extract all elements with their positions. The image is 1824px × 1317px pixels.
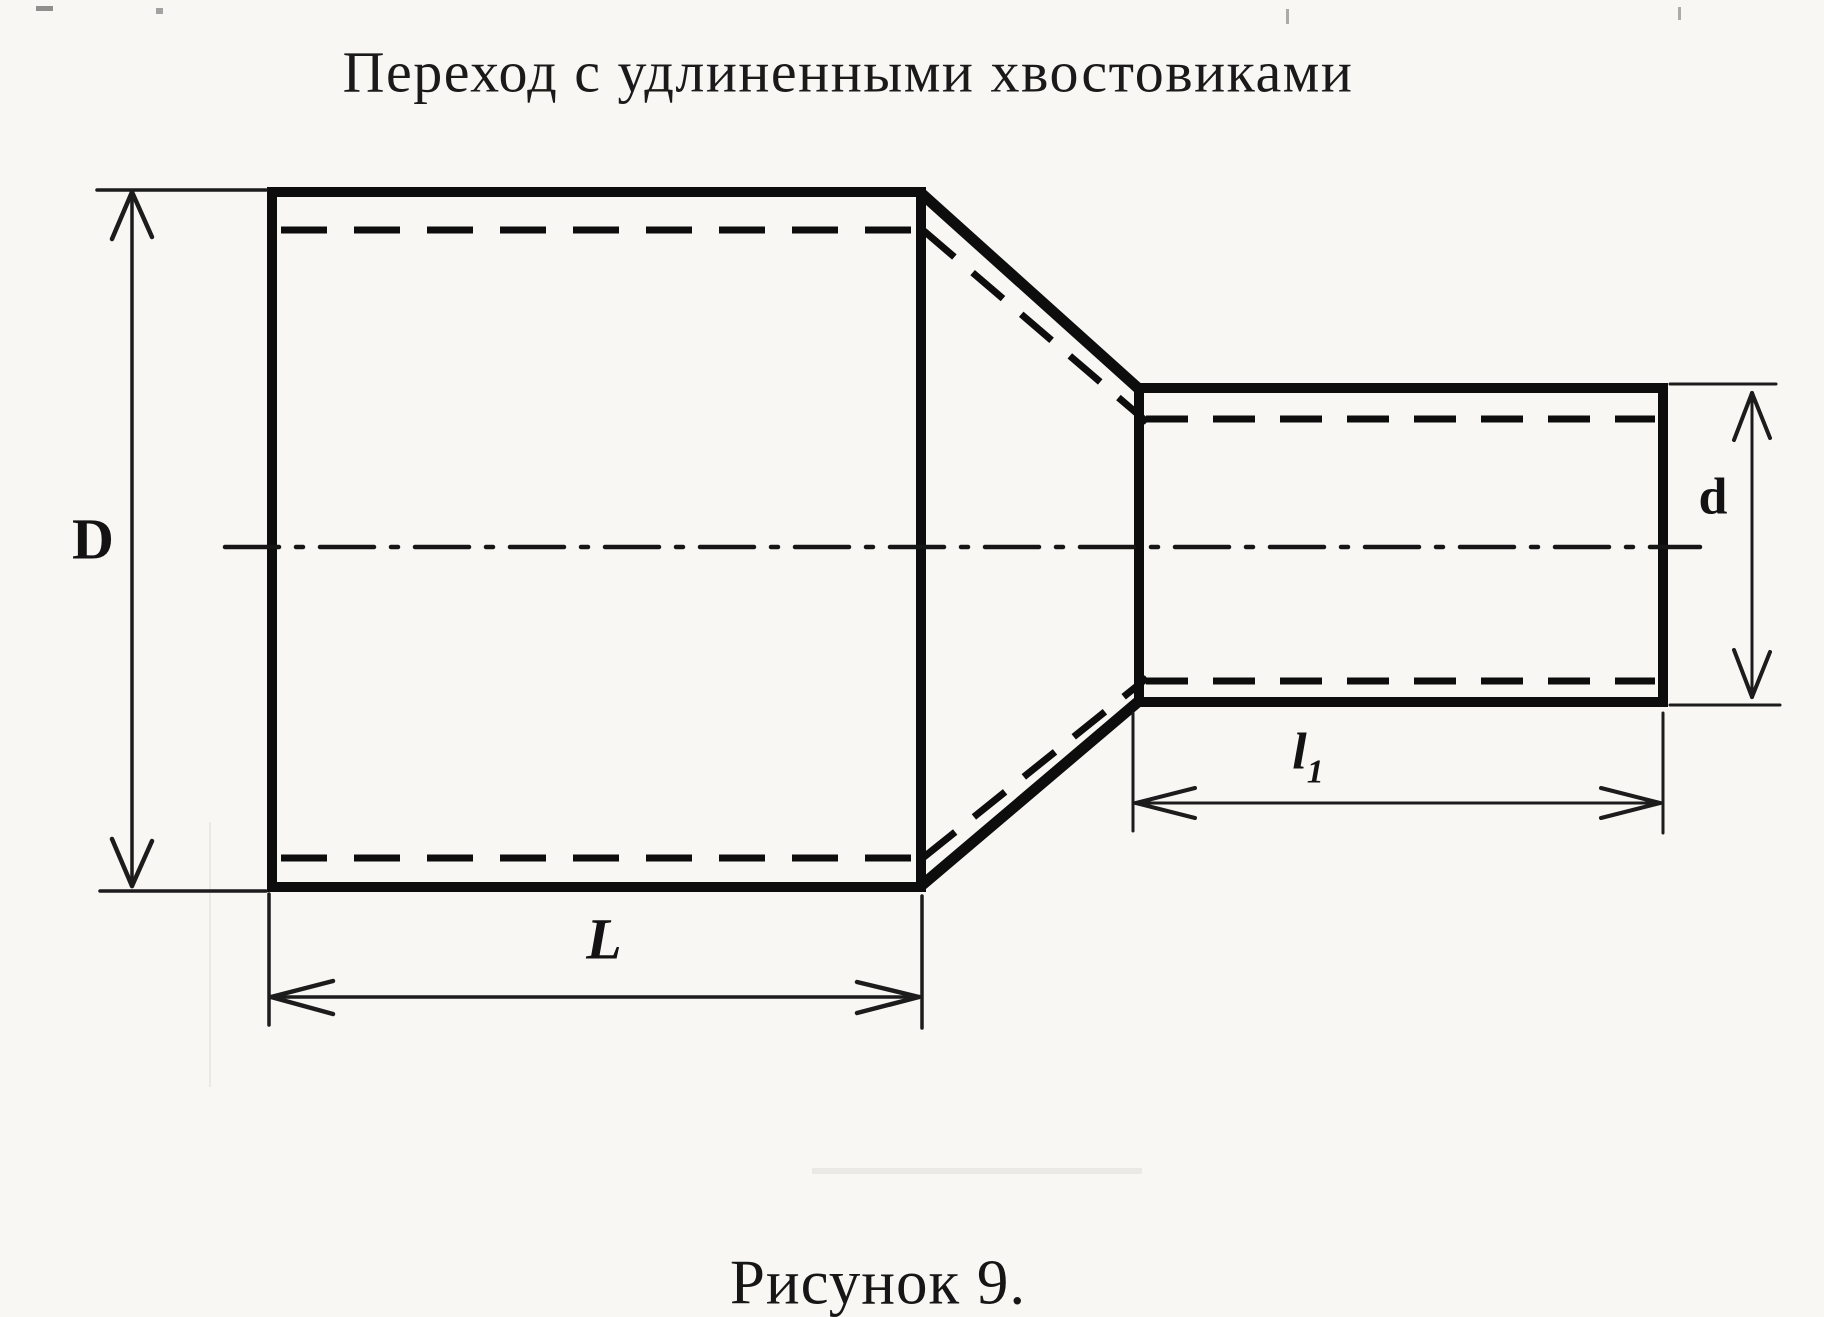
drawing-title: Переход с удлиненными хвостовиками <box>343 39 1354 106</box>
dimension-D <box>97 190 266 891</box>
cone-bore-dashed <box>924 231 1147 857</box>
scan-speck <box>1678 7 1681 20</box>
small-cylinder-bore-dashed <box>1146 419 1655 681</box>
scan-streak-vertical <box>209 822 211 1087</box>
reducer-drawing <box>0 0 1824 1317</box>
scanned-drawing-page: Переход с удлиненными хвостовиками D d L… <box>0 0 1824 1317</box>
big-cylinder-outline <box>272 192 921 887</box>
label-L: L <box>586 906 621 973</box>
cone-outline <box>921 193 1139 886</box>
label-d: d <box>1699 468 1728 527</box>
label-l1-base: l <box>1292 724 1306 781</box>
big-cylinder-bore-dashed <box>281 230 914 858</box>
scan-speck <box>1286 9 1289 24</box>
scan-speck <box>156 8 163 14</box>
label-D: D <box>72 506 114 573</box>
dimension-l1 <box>1133 713 1663 833</box>
label-l1: l1 <box>1292 723 1323 782</box>
dimension-d <box>1670 384 1780 705</box>
scan-streak-horizontal <box>812 1168 1142 1174</box>
label-l1-subscript: 1 <box>1307 754 1324 791</box>
figure-caption: Рисунок 9. <box>730 1247 1026 1317</box>
scan-speck <box>36 6 53 11</box>
